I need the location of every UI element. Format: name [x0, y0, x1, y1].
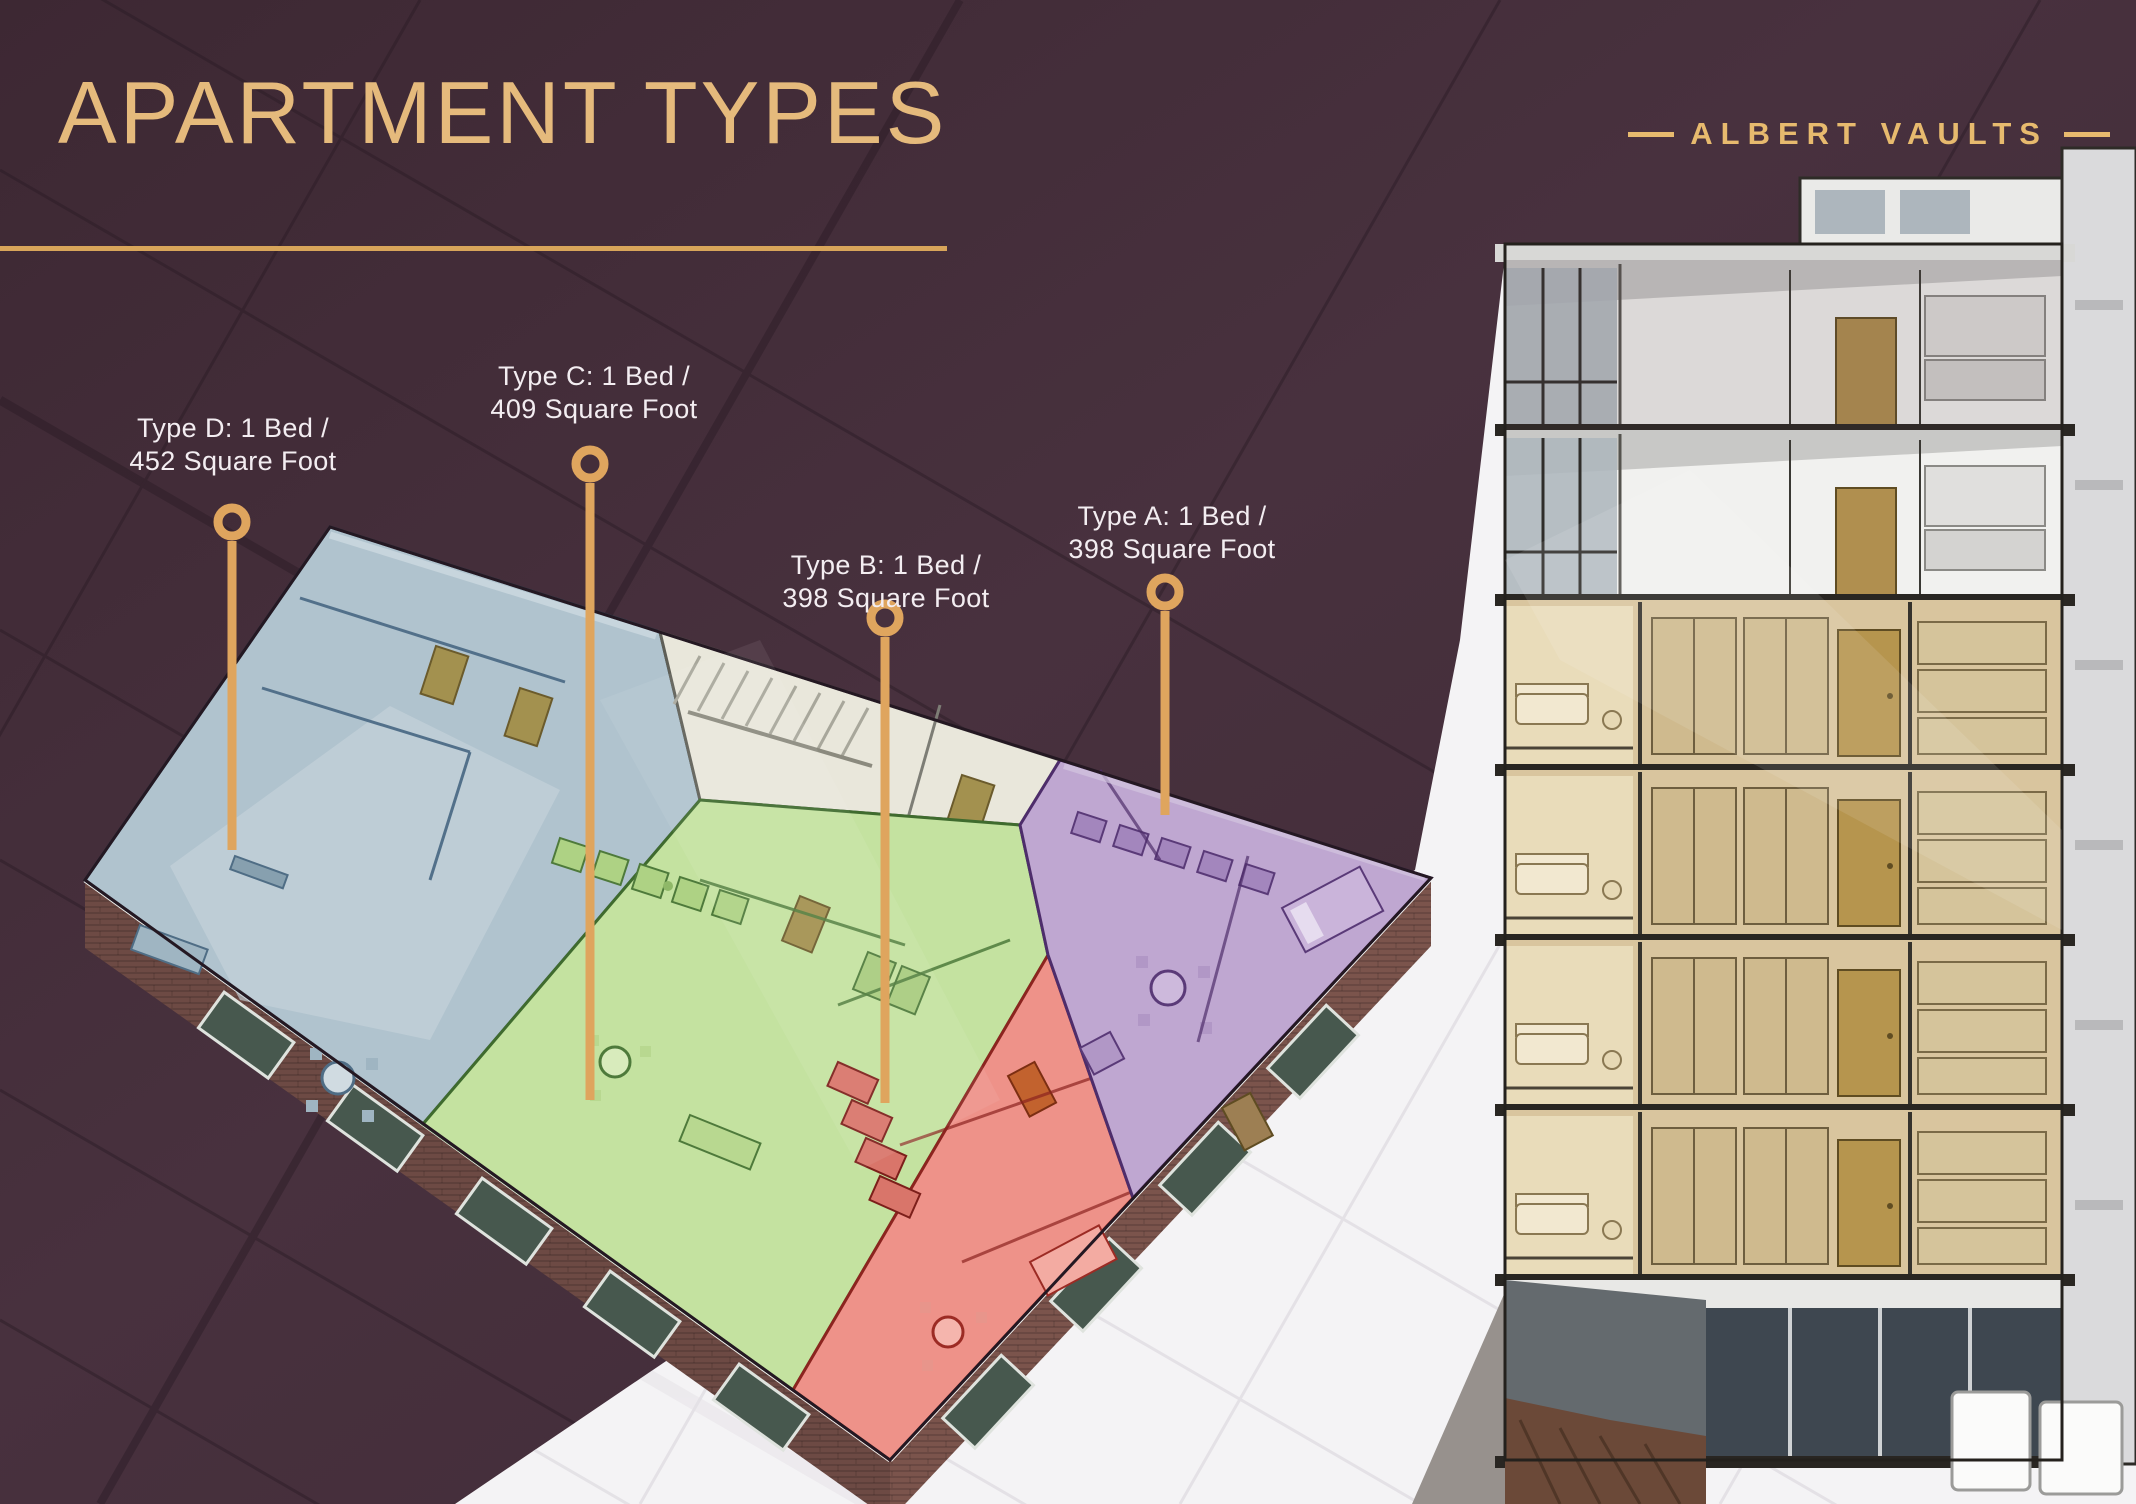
- callout-label-type-d: Type D: 1 Bed / 452 Square Foot: [129, 412, 336, 478]
- slide: APARTMENT TYPES ALBERT VAULTS Type D: 1 …: [0, 0, 2136, 1504]
- callout-label-type-c-line1: Type C: 1 Bed /: [490, 360, 697, 393]
- title-underline-rule: [0, 246, 947, 251]
- callout-label-type-c-line2: 409 Square Foot: [490, 393, 697, 426]
- brand-name: ALBERT VAULTS: [1690, 116, 2048, 152]
- brand-dash-left: [1628, 132, 1674, 137]
- brand-logo: ALBERT VAULTS: [1628, 116, 2110, 152]
- callout-label-type-a-line1: Type A: 1 Bed /: [1068, 500, 1275, 533]
- callout-label-type-d-line2: 452 Square Foot: [129, 445, 336, 478]
- building-section-render: [1412, 148, 2136, 1504]
- slide-graphics: [0, 0, 2136, 1504]
- callout-label-type-b-line2: 398 Square Foot: [782, 582, 989, 615]
- callout-label-type-b-line1: Type B: 1 Bed /: [782, 549, 989, 582]
- page-title: APARTMENT TYPES: [58, 62, 947, 164]
- callout-label-type-a: Type A: 1 Bed / 398 Square Foot: [1068, 500, 1275, 566]
- brand-dash-right: [2064, 132, 2110, 137]
- callout-label-type-a-line2: 398 Square Foot: [1068, 533, 1275, 566]
- callout-label-type-c: Type C: 1 Bed / 409 Square Foot: [490, 360, 697, 426]
- callout-label-type-d-line1: Type D: 1 Bed /: [129, 412, 336, 445]
- callout-label-type-b: Type B: 1 Bed / 398 Square Foot: [782, 549, 989, 615]
